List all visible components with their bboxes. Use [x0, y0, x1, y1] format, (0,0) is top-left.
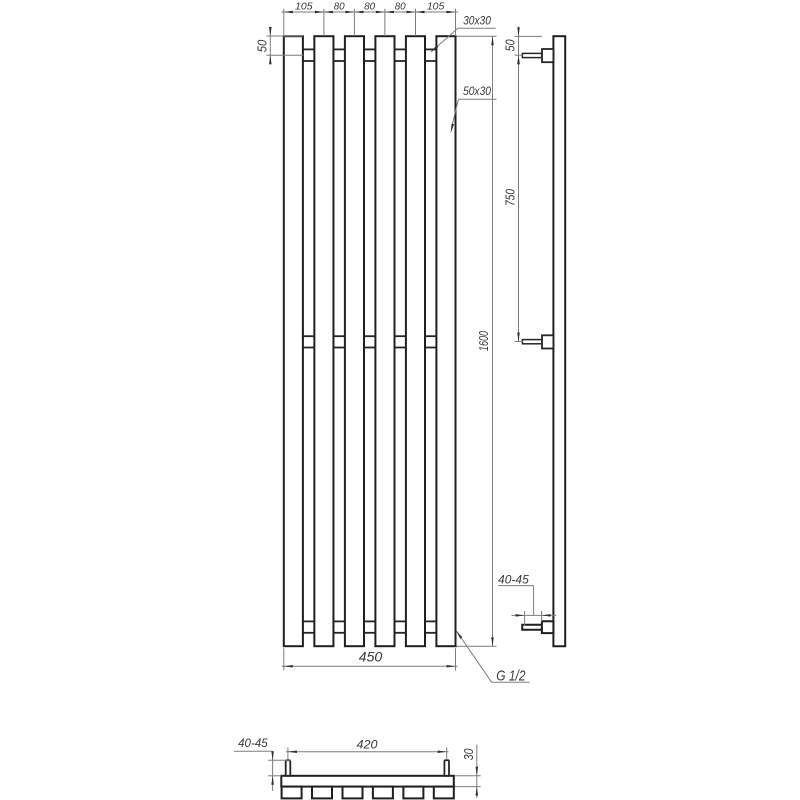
- svg-text:G 1/2: G 1/2: [496, 667, 526, 684]
- svg-text:40-45: 40-45: [238, 736, 268, 750]
- svg-text:80: 80: [395, 1, 406, 12]
- svg-text:450: 450: [359, 650, 383, 665]
- svg-text:50: 50: [255, 40, 269, 52]
- svg-text:50: 50: [503, 39, 517, 51]
- svg-text:105: 105: [295, 1, 313, 12]
- svg-text:80: 80: [364, 1, 375, 12]
- svg-text:750: 750: [502, 188, 517, 206]
- svg-text:40-45: 40-45: [498, 572, 529, 586]
- svg-text:420: 420: [357, 737, 378, 751]
- svg-text:80: 80: [334, 1, 345, 12]
- svg-text:30: 30: [462, 749, 476, 761]
- svg-text:50x30: 50x30: [463, 84, 491, 98]
- svg-text:30x30: 30x30: [463, 13, 491, 27]
- svg-text:1600: 1600: [476, 330, 491, 351]
- svg-text:105: 105: [427, 1, 445, 12]
